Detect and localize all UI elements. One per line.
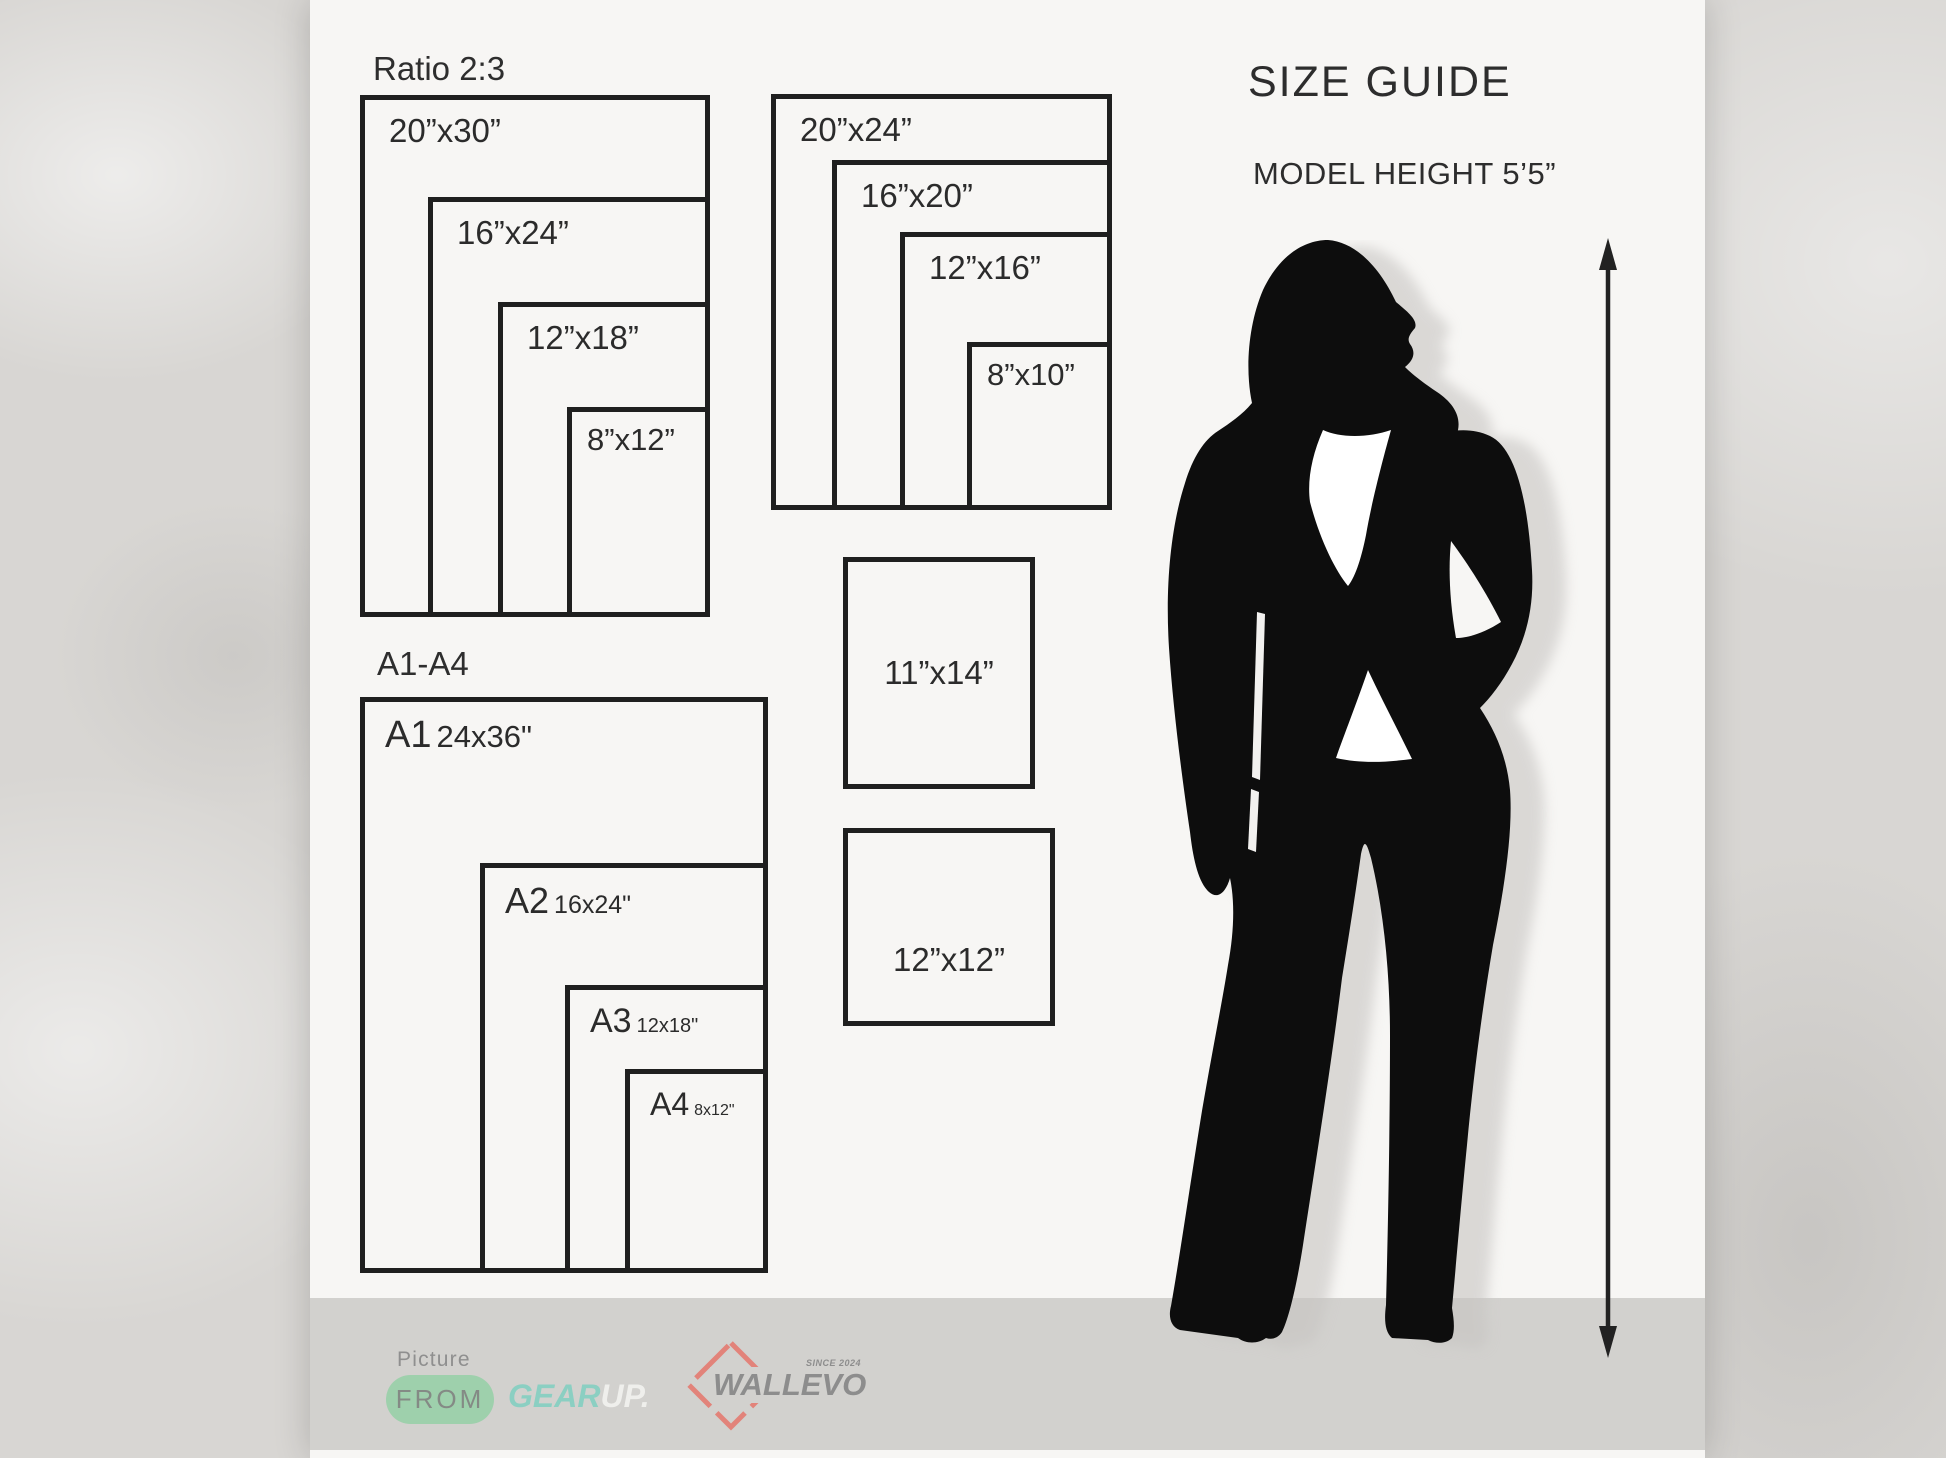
from-badge-label: FROM [396, 1384, 485, 1415]
size-label-20x30: 20”x30” [389, 112, 501, 150]
size-label-8x10: 8”x10” [987, 357, 1075, 393]
arrow-down-icon [1599, 1326, 1617, 1358]
gearup-logo: GEARUP. [508, 1378, 650, 1415]
gearup-logo-gear: GEAR [508, 1378, 600, 1414]
size-box-8x12: 8”x12” [567, 407, 710, 617]
picture-label: Picture [397, 1348, 471, 1372]
size-label-8x12: 8”x12” [587, 422, 675, 458]
size-label-a4: A4 8x12" [650, 1086, 735, 1123]
size-box-8x10: 8”x10” [967, 342, 1112, 510]
model-silhouette [1160, 240, 1600, 1360]
size-label-16x24: 16”x24” [457, 214, 569, 252]
size-box-a4: A4 8x12" [625, 1069, 768, 1273]
size-label-11x14: 11”x14” [884, 654, 993, 692]
size-box-12x12: 12”x12” [843, 828, 1055, 1026]
arrow-up-icon [1599, 238, 1617, 270]
ratio-group-title: Ratio 2:3 [373, 50, 505, 88]
size-label-a2: A2 16x24" [505, 880, 631, 922]
size-label-20x24: 20”x24” [800, 111, 912, 149]
height-arrow [1592, 236, 1624, 1360]
size-label-a1: A1 24x36" [385, 714, 532, 757]
size-label-a3: A3 12x18" [590, 1002, 698, 1041]
size-label-16x20: 16”x20” [861, 177, 973, 215]
a-series-title: A1-A4 [377, 645, 469, 683]
size-label-12x16: 12”x16” [929, 249, 1041, 287]
model-height-label: MODEL HEIGHT 5’5” [1253, 156, 1556, 192]
gearup-logo-up: UP. [600, 1378, 649, 1414]
size-box-11x14: 11”x14” [843, 557, 1035, 789]
size-label-12x12: 12”x12” [893, 941, 1005, 979]
wallevo-logo: WALLEVO [710, 1367, 869, 1403]
size-label-12x18: 12”x18” [527, 319, 639, 357]
page-title: SIZE GUIDE [1248, 58, 1512, 107]
from-badge: FROM [386, 1375, 494, 1424]
